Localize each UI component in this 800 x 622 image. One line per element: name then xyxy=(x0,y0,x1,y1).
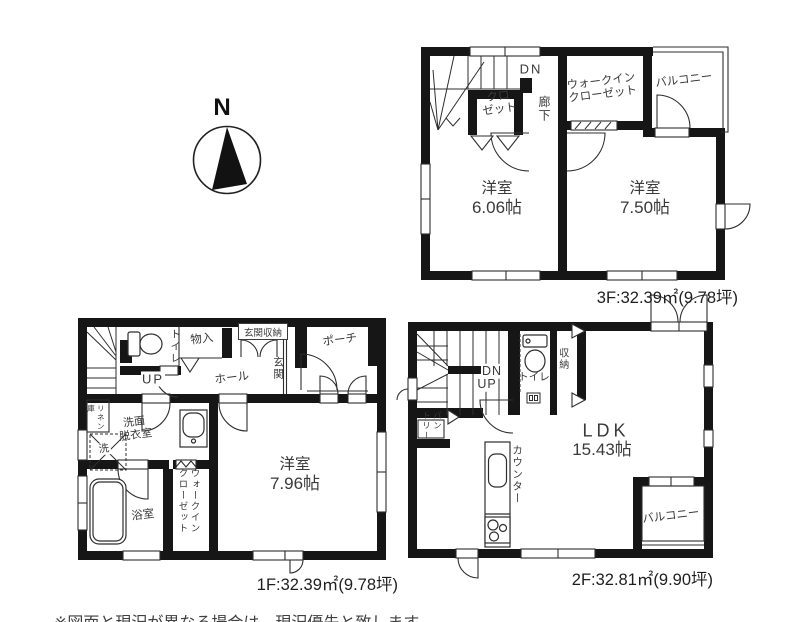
label-1f-washer: 洗 xyxy=(97,442,111,456)
compass-north-label: N xyxy=(213,94,230,122)
closet-door-mark-1f xyxy=(181,358,199,372)
compass-icon xyxy=(186,120,270,204)
label-1f-room: 洋室 7.96帖 xyxy=(270,456,320,494)
closet-door-marks-3f xyxy=(471,136,519,150)
label-2f-ldk-size: 15.43帖 xyxy=(572,440,632,460)
label-1f-entrance-text: 玄関 xyxy=(272,356,284,380)
label-3f-closet: クロ ゼット xyxy=(480,89,517,120)
label-3f-room1: 洋室 6.06帖 xyxy=(472,180,522,218)
label-1f-toilet-text: トイレ xyxy=(169,328,181,364)
label-1f-linen: リネン 庫 xyxy=(86,405,104,432)
label-3f-room2-size: 7.50帖 xyxy=(620,198,670,218)
label-2f-ldk: LDK xyxy=(582,421,629,442)
floor-plan-1f xyxy=(70,312,420,576)
label-2f-pantry: パン トリー xyxy=(421,411,442,441)
stove-icon xyxy=(485,517,510,543)
label-1f-room-name: 洋室 xyxy=(270,456,320,474)
sink-icon xyxy=(489,454,507,487)
label-3f-dn: DN xyxy=(519,61,544,76)
label-3f-hallway: 廊下 xyxy=(536,96,550,127)
label-2f-storage: 収納 xyxy=(556,348,568,375)
label-2f-pantry-col2: トリー xyxy=(421,411,431,441)
label-1f-toilet: トイレ xyxy=(169,328,181,367)
label-2f-counter-text: カウンター xyxy=(511,444,523,504)
label-1f-wic-col1: ウォークイン xyxy=(189,468,200,534)
bathtub-icon xyxy=(90,479,126,544)
area-label-2f: 2F:32.81㎡(9.90坪) xyxy=(543,566,713,590)
area-label-3f: 3F:32.39㎡(9.78坪) xyxy=(568,284,738,308)
label-1f-wic-col2: クローゼット xyxy=(176,468,187,534)
label-1f-linen-col1: リネン xyxy=(96,405,105,432)
area-label-1f: 1F:32.39㎡(9.78坪) xyxy=(228,571,398,595)
floor-plan-2f xyxy=(396,294,730,582)
label-1f-linen-col2: 庫 xyxy=(86,405,95,414)
label-1f-washroom: 洗面 脱衣室 xyxy=(117,414,153,443)
label-3f-room1-name: 洋室 xyxy=(472,180,522,198)
label-1f-up: UP xyxy=(141,371,165,386)
stairs-1f xyxy=(87,327,116,394)
label-1f-entrance: 玄関 xyxy=(272,356,284,383)
label-1f-wic: ウォークイン クローゼット xyxy=(176,468,199,534)
label-2f-storage-text: 収納 xyxy=(556,348,568,371)
label-3f-room1-size: 6.06帖 xyxy=(472,198,522,218)
footnote: ※図面と現況が異なる場合は、現況優先と致します。 xyxy=(54,609,434,622)
toilet-icon-2f xyxy=(523,335,547,372)
label-3f-room2: 洋室 7.50帖 xyxy=(620,180,670,218)
label-2f-toilet: トイレ xyxy=(518,371,550,383)
label-2f-counter: カウンター xyxy=(511,444,523,507)
label-3f-room2-name: 洋室 xyxy=(620,180,670,198)
label-1f-room-size: 7.96帖 xyxy=(270,474,320,494)
label-1f-entrance-storage: 玄関収納 xyxy=(238,323,288,340)
vent-icon-2f xyxy=(527,393,540,403)
floorplan-page: N xyxy=(0,0,800,622)
label-3f-hallway-text: 廊下 xyxy=(536,96,550,123)
toilet-icon-1f xyxy=(128,332,162,356)
label-2f-pantry-col1: パン xyxy=(432,411,442,431)
label-2f-up: UP xyxy=(476,377,497,392)
label-1f-bathroom: 浴室 xyxy=(131,508,155,524)
washbasin-icon xyxy=(180,410,207,447)
label-1f-storage: 物入 xyxy=(190,332,214,348)
